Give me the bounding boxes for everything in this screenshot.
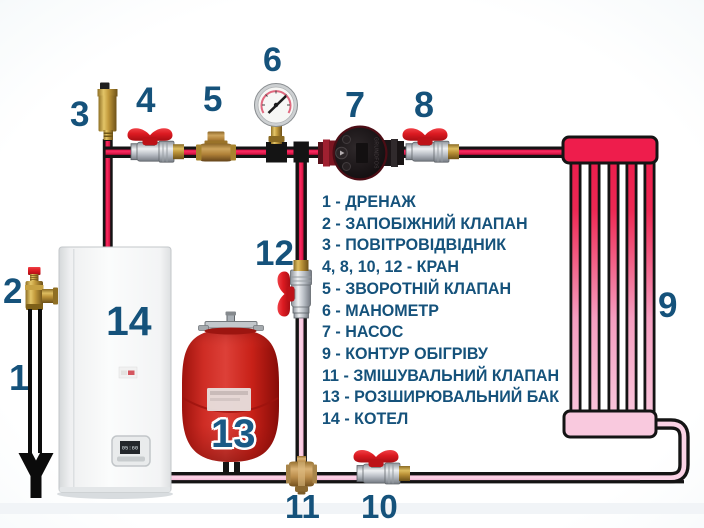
svg-text:GRUNDFOS: GRUNDFOS — [373, 137, 379, 169]
svg-text:05:60: 05:60 — [122, 445, 139, 452]
